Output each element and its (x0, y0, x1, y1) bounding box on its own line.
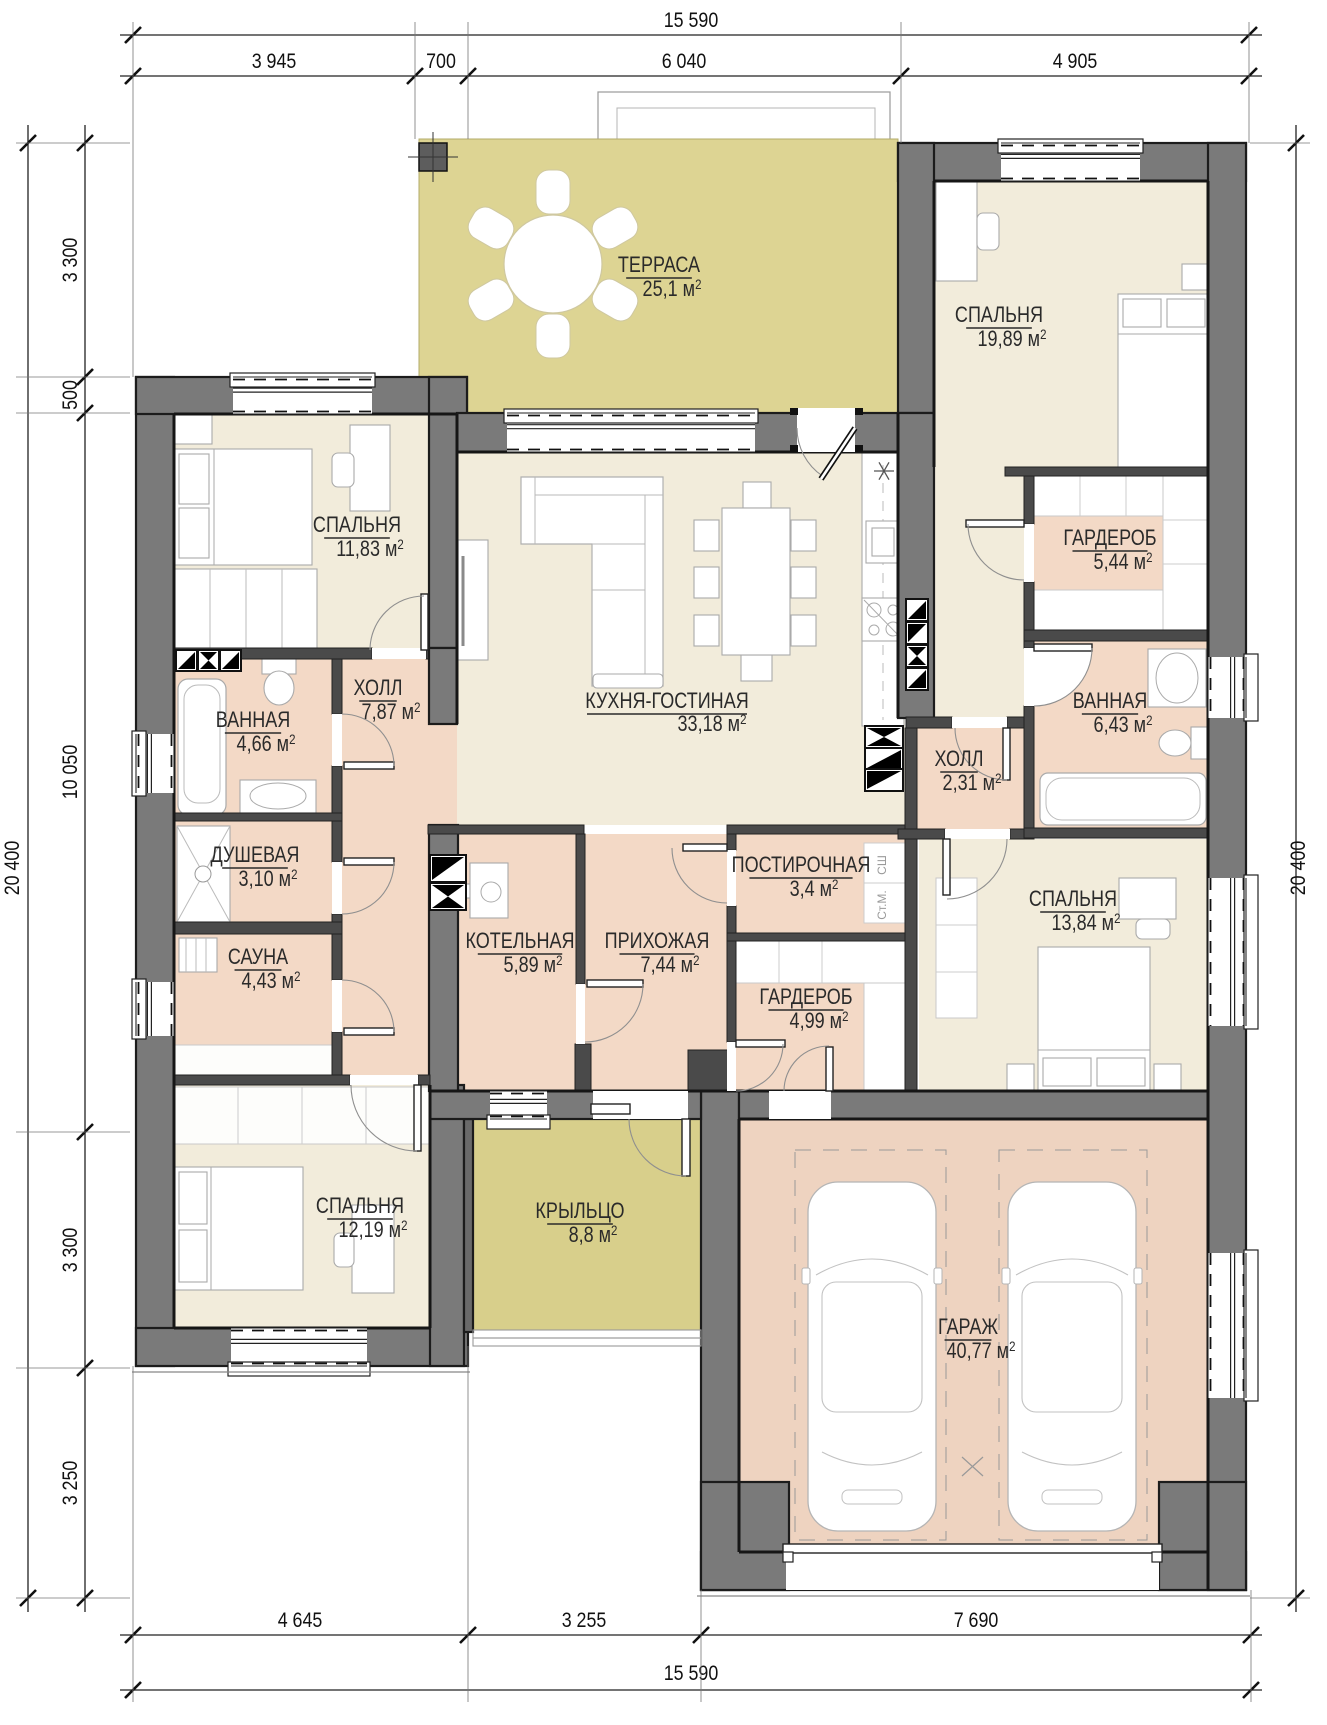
svg-text:5,44 м2: 5,44 м2 (1094, 549, 1153, 575)
svg-text:6,43 м2: 6,43 м2 (1094, 712, 1153, 738)
svg-text:ГАРДЕРОБ: ГАРДЕРОБ (759, 985, 852, 1009)
svg-text:Ст.М.: Ст.М. (875, 890, 889, 920)
svg-text:ТЕРРАСА: ТЕРРАСА (618, 253, 701, 277)
svg-text:3 300: 3 300 (59, 1228, 83, 1273)
svg-text:2,31 м2: 2,31 м2 (943, 770, 1002, 796)
svg-text:3 945: 3 945 (252, 50, 297, 74)
svg-text:7,87 м2: 7,87 м2 (362, 699, 421, 725)
svg-text:20 400: 20 400 (1287, 841, 1311, 896)
svg-text:7,44 м2: 7,44 м2 (641, 952, 700, 978)
svg-text:5,89 м2: 5,89 м2 (504, 952, 563, 978)
svg-text:15 590: 15 590 (664, 1662, 719, 1686)
svg-text:СПАЛЬНЯ: СПАЛЬНЯ (1029, 887, 1117, 911)
svg-text:СПАЛЬНЯ: СПАЛЬНЯ (313, 513, 401, 537)
svg-text:ПРИХОЖАЯ: ПРИХОЖАЯ (605, 929, 710, 953)
svg-text:САУНА: САУНА (228, 945, 289, 969)
svg-text:КОТЕЛЬНАЯ: КОТЕЛЬНАЯ (465, 929, 574, 953)
svg-text:ХОЛЛ: ХОЛЛ (935, 747, 984, 771)
svg-text:13,84 м2: 13,84 м2 (1052, 910, 1121, 936)
svg-text:700: 700 (426, 50, 456, 74)
svg-text:33,18 м2: 33,18 м2 (678, 711, 747, 737)
svg-text:4,66 м2: 4,66 м2 (237, 731, 296, 757)
svg-text:15 590: 15 590 (664, 9, 719, 33)
svg-text:40,77 м2: 40,77 м2 (947, 1338, 1016, 1364)
svg-text:7 690: 7 690 (954, 1609, 999, 1633)
svg-text:СШ: СШ (875, 855, 889, 875)
svg-text:3 300: 3 300 (59, 238, 83, 283)
svg-text:ГАРАЖ: ГАРАЖ (938, 1315, 998, 1339)
svg-text:20 400: 20 400 (1, 841, 25, 896)
svg-text:3 250: 3 250 (59, 1461, 83, 1506)
svg-text:КРЫЛЬЦО: КРЫЛЬЦО (535, 1199, 624, 1223)
svg-text:ДУШЕВАЯ: ДУШЕВАЯ (211, 843, 300, 867)
svg-text:ВАННАЯ: ВАННАЯ (216, 708, 291, 732)
svg-text:3,10 м2: 3,10 м2 (239, 866, 298, 892)
svg-text:3,4 м2: 3,4 м2 (790, 876, 839, 902)
svg-text:СПАЛЬНЯ: СПАЛЬНЯ (316, 1194, 404, 1218)
svg-text:4 645: 4 645 (278, 1609, 323, 1633)
svg-text:4,99 м2: 4,99 м2 (790, 1008, 849, 1034)
svg-text:19,89 м2: 19,89 м2 (978, 326, 1047, 352)
svg-text:4 905: 4 905 (1053, 50, 1098, 74)
svg-text:4,43 м2: 4,43 м2 (242, 968, 301, 994)
svg-text:СПАЛЬНЯ: СПАЛЬНЯ (955, 303, 1043, 327)
svg-text:ВАННАЯ: ВАННАЯ (1073, 689, 1148, 713)
svg-text:ПОСТИРОЧНАЯ: ПОСТИРОЧНАЯ (732, 853, 871, 877)
svg-text:КУХНЯ-ГОСТИНАЯ: КУХНЯ-ГОСТИНАЯ (585, 689, 748, 713)
svg-text:10 050: 10 050 (59, 745, 83, 800)
svg-text:12,19 м2: 12,19 м2 (339, 1217, 408, 1243)
svg-text:8,8 м2: 8,8 м2 (569, 1222, 618, 1248)
svg-text:500: 500 (59, 380, 83, 410)
svg-text:3 255: 3 255 (562, 1609, 607, 1633)
svg-text:ХОЛЛ: ХОЛЛ (354, 676, 403, 700)
svg-text:6 040: 6 040 (662, 50, 707, 74)
svg-text:25,1 м2: 25,1 м2 (643, 276, 702, 302)
svg-text:11,83 м2: 11,83 м2 (336, 536, 404, 562)
svg-text:ГАРДЕРОБ: ГАРДЕРОБ (1063, 526, 1156, 550)
